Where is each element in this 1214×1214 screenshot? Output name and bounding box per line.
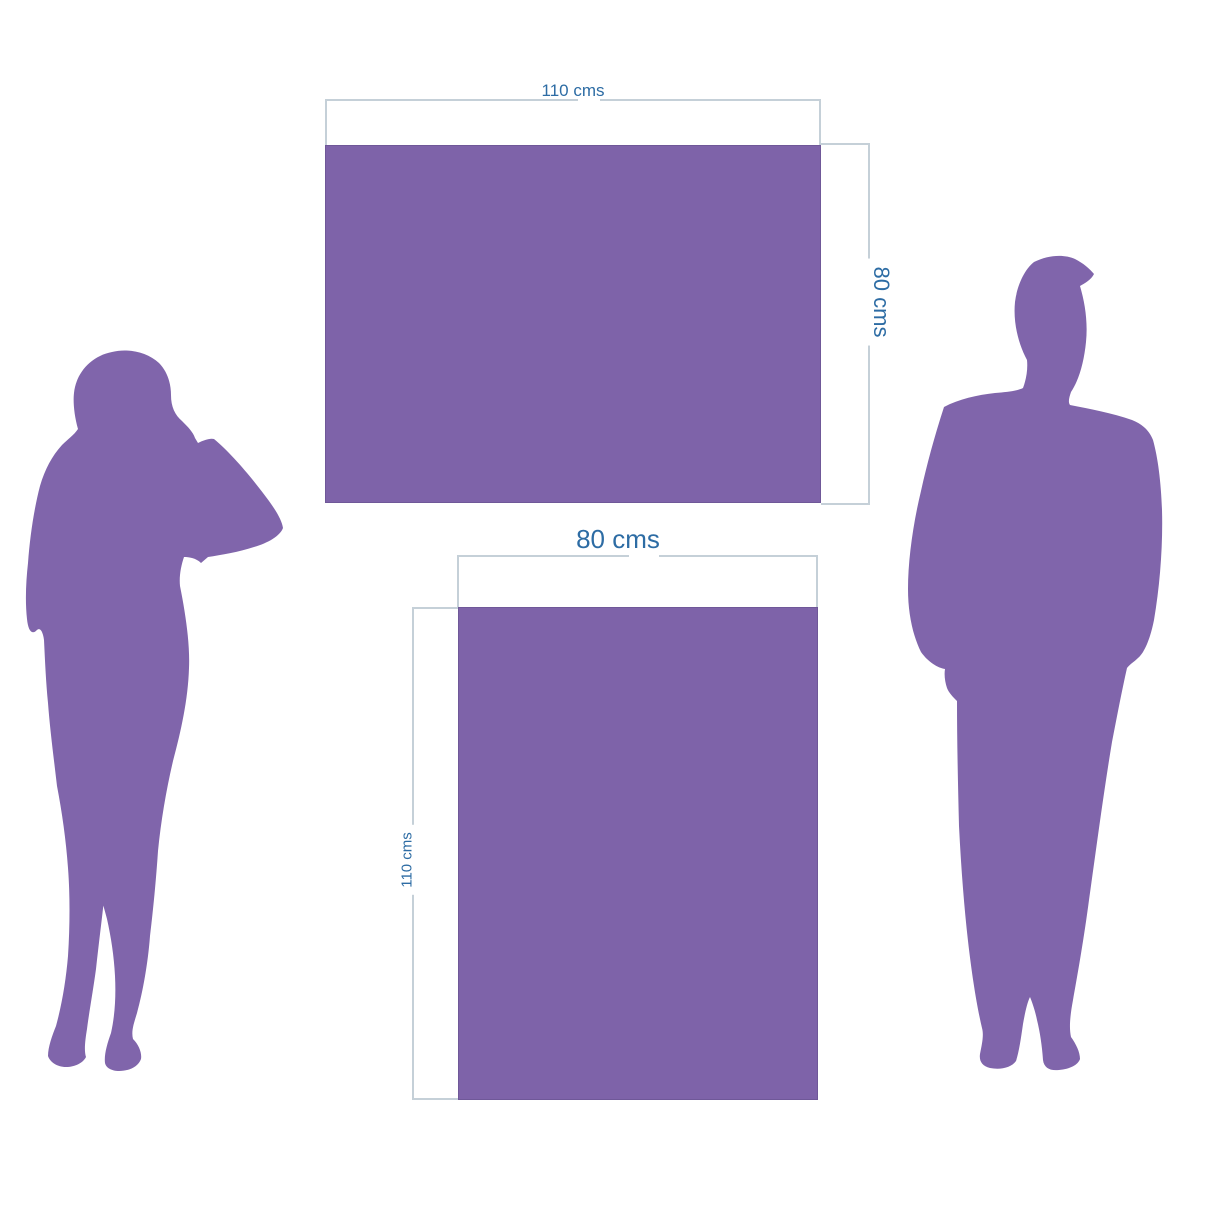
width-dimension-bracket-portrait: [457, 555, 818, 607]
width-dimension-bracket-landscape: [325, 99, 821, 145]
man-silhouette: [908, 256, 1162, 1070]
woman-silhouette: [26, 350, 283, 1071]
portrait-width-label: 80 cms: [576, 526, 660, 552]
landscape-height-label: 80 cms: [867, 259, 895, 346]
portrait-artwork-rectangle: [458, 607, 818, 1100]
size-comparison-diagram: 110 cms 80 cms 80 cms 110 cms: [0, 0, 1214, 1214]
height-dimension-bracket-portrait: [412, 607, 458, 1100]
dimension-line-gap: [629, 554, 659, 558]
portrait-height-label: 110 cms: [398, 825, 417, 895]
height-dimension-bracket-landscape: [821, 143, 870, 505]
landscape-width-label: 110 cms: [325, 82, 821, 99]
landscape-artwork-rectangle: [325, 145, 821, 503]
